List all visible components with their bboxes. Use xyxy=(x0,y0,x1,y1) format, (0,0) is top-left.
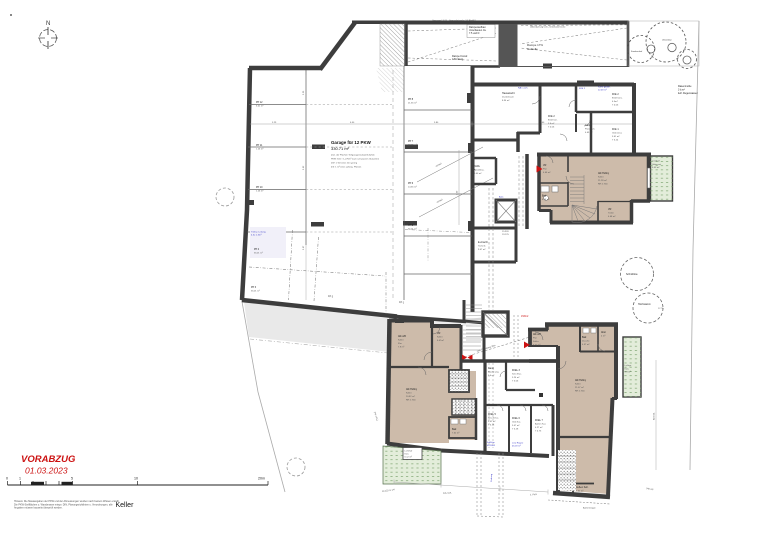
svg-text:PP 6: PP 6 xyxy=(408,182,414,185)
svg-text:20m: 20m xyxy=(258,477,265,481)
svg-text:21.07 m²: 21.07 m² xyxy=(575,386,584,389)
svg-text:T 5.28: T 5.28 xyxy=(512,429,519,431)
svg-text:4.27 m²: 4.27 m² xyxy=(535,426,543,429)
svg-text:FKE 2: FKE 2 xyxy=(548,115,555,118)
svg-text:Bad: Bad xyxy=(452,428,457,431)
svg-text:Flucht weg: Flucht weg xyxy=(488,370,499,373)
svg-text:PP 11: PP 11 xyxy=(256,144,263,147)
svg-text:12 ?b: 12 ?b xyxy=(658,308,664,310)
svg-text:FKE 1: FKE 1 xyxy=(612,128,619,131)
svg-text:5: 5 xyxy=(71,477,73,481)
svg-text:E-Anschl.: E-Anschl. xyxy=(478,241,489,244)
svg-text:Keller: Keller xyxy=(533,340,539,343)
svg-text:Lichthof: Lichthof xyxy=(652,160,660,163)
svg-text:Gitterrost: Gitterrost xyxy=(652,163,661,166)
svg-text:Keller: Keller xyxy=(116,502,135,509)
svg-text:Außen Kell.: Außen Kell. xyxy=(576,486,589,489)
svg-text:AR-Hobby: AR-Hobby xyxy=(598,172,610,175)
svg-text:T 4.06: T 4.06 xyxy=(548,127,555,129)
svg-text:6.12 m²: 6.12 m² xyxy=(405,456,413,459)
svg-text:3.6 m²: 3.6 m² xyxy=(548,122,554,125)
svg-text:5.70 m²: 5.70 m² xyxy=(533,344,541,347)
svg-text:5.24 m²: 5.24 m² xyxy=(512,376,520,379)
svg-text:56.01 m²: 56.01 m² xyxy=(251,290,260,293)
svg-text:AR+VR: AR+VR xyxy=(533,333,541,336)
svg-text:Bad: Bad xyxy=(582,336,587,339)
svg-text:Schr./Kas: Schr./Kas xyxy=(512,373,522,376)
svg-text:PP 12: PP 12 xyxy=(256,101,263,104)
svg-text:4.66 m²: 4.66 m² xyxy=(543,171,551,174)
svg-text:Garage für 12 PKW: Garage für 12 PKW xyxy=(331,140,372,145)
svg-text:4/5: 1 m² einer außerg. Pfütze: 4/5: 1 m² einer außerg. Pfützen xyxy=(331,166,362,169)
svg-text:Gehweg: Gehweg xyxy=(491,473,493,482)
svg-text:Schnittlinie: Schnittlinie xyxy=(626,273,638,276)
svg-text:Umsetzbar: Umsetzbar xyxy=(662,39,672,42)
svg-text:Lichtgr.: Lichtgr. xyxy=(625,364,632,367)
svg-text:48.18m²: 48.18m² xyxy=(487,444,495,447)
svg-text:330.71 m²: 330.71 m² xyxy=(331,146,350,151)
svg-text:5.01 m²: 5.01 m² xyxy=(488,420,496,423)
svg-text:Getr.Kas: Getr.Kas xyxy=(512,421,521,424)
svg-text:5.01 m²: 5.01 m² xyxy=(256,105,264,108)
svg-text:Keller: Keller xyxy=(575,383,581,386)
svg-text:1: 1 xyxy=(19,477,21,481)
svg-text:N: N xyxy=(46,21,50,27)
svg-text:Hausanschl.: Hausanschl. xyxy=(502,92,515,95)
svg-text:AR-Hobby: AR-Hobby xyxy=(575,379,587,382)
svg-text:01.03.2023: 01.03.2023 xyxy=(25,466,68,476)
svg-text:3.9 m²: 3.9 m² xyxy=(625,371,631,374)
svg-text:(incl. der Flächen Tiefgaragen: (incl. der Flächen Tiefgaragenrampe/Zufa… xyxy=(331,154,375,157)
svg-text:Einkfl vers.: Einkfl vers. xyxy=(612,97,623,100)
svg-text:46.18 m²: 46.18 m² xyxy=(512,445,521,448)
svg-text:AR+VR: AR+VR xyxy=(398,335,406,338)
svg-text:1.26 m²: 1.26 m² xyxy=(256,190,264,193)
svg-text:Besch.Kas: Besch.Kas xyxy=(488,418,499,420)
svg-text:Trinkw. Leitung: Trinkw. Leitung xyxy=(251,231,266,234)
svg-text:RA n.vorh.: RA n.vorh. xyxy=(518,87,529,90)
svg-text:Flur: Flur xyxy=(533,337,537,340)
svg-text:22.48 m²: 22.48 m² xyxy=(598,89,607,92)
svg-text:Flur: Flur xyxy=(543,168,547,171)
svg-text:21.28 m²: 21.28 m² xyxy=(598,179,607,182)
svg-text:AR-Hobby: AR-Hobby xyxy=(406,388,418,391)
svg-text:T 4.75: T 4.75 xyxy=(535,431,542,433)
svg-text:Tielen: Tielen xyxy=(608,213,615,215)
svg-text:5aR/àm: 5aR/àm xyxy=(487,442,495,444)
svg-text:5.07 m²: 5.07 m² xyxy=(512,424,520,427)
svg-text:FKEL 3: FKEL 3 xyxy=(512,369,521,372)
svg-text:Bad: Bad xyxy=(542,195,547,198)
svg-text:4.5u 1.3m²: 4.5u 1.3m² xyxy=(251,234,262,237)
svg-text:VR: VR xyxy=(543,164,547,167)
svg-text:T 5.18: T 5.18 xyxy=(488,425,495,427)
svg-text:Ueberdachung 5.05 - Unterkante: Ueberdachung 5.05 - Unterkante Decke xyxy=(530,26,566,29)
svg-text:56.01 m²: 56.01 m² xyxy=(254,252,263,255)
svg-text:3.61 m²: 3.61 m² xyxy=(612,135,620,138)
svg-text:7.5 und D: 7.5 und D xyxy=(469,32,480,35)
svg-text:Gefaelle: Gefaelle xyxy=(527,47,538,51)
svg-text:19.125: 19.125 xyxy=(502,234,509,236)
svg-text:Außentreppe: Außentreppe xyxy=(583,507,596,510)
svg-text:10: 10 xyxy=(134,477,138,481)
svg-text:Aufz.: Aufz. xyxy=(499,196,504,199)
svg-text:Keller: Keller xyxy=(406,392,412,395)
svg-text:0: 0 xyxy=(6,477,8,481)
svg-text:T 4.06: T 4.06 xyxy=(612,105,619,107)
svg-text:KiWa: KiWa xyxy=(474,165,480,168)
svg-text:Grenzverl. 5.05 - Grenzabstand: Grenzverl. 5.05 - Grenzabstand n. 54 Bbg… xyxy=(432,19,476,22)
svg-text:Getr.kress: Getr.kress xyxy=(612,132,623,135)
svg-text:Kernf geöffn.: Kernf geöffn. xyxy=(598,86,611,89)
svg-text:Keller: Keller xyxy=(598,176,604,179)
svg-text:20.82 m²: 20.82 m² xyxy=(406,395,415,398)
svg-text:21.56 m²: 21.56 m² xyxy=(408,102,417,105)
svg-text:9.47 m²: 9.47 m² xyxy=(478,248,486,251)
svg-text:Lino Regne: Lino Regne xyxy=(512,443,524,445)
svg-text:Dunkelraum: Dunkelraum xyxy=(502,96,514,99)
svg-text:Abst: Abst xyxy=(601,331,606,334)
svg-text:FKE 2: FKE 2 xyxy=(579,88,586,90)
svg-text:6.47m²: 6.47m² xyxy=(437,339,444,342)
svg-text:ZW: 1 Teil einer 2m sperrig: ZW: 1 Teil einer 2m sperrig xyxy=(331,162,358,165)
svg-text:RH 2.75m: RH 2.75m xyxy=(406,400,416,402)
svg-text:4.57 m²: 4.57 m² xyxy=(582,343,590,346)
svg-text:PP 5: PP 5 xyxy=(408,224,414,227)
svg-text:4.08 m²: 4.08 m² xyxy=(542,198,550,201)
svg-text:Flur: Flur xyxy=(398,342,402,345)
svg-text:Keller: Keller xyxy=(398,339,404,342)
svg-text:T 5.06: T 5.06 xyxy=(512,381,519,383)
svg-text:48.01 m²: 48.01 m² xyxy=(408,144,417,147)
svg-text:Kanalverlauf: Kanalverlauf xyxy=(631,51,643,53)
svg-text:4.5m²: 4.5m² xyxy=(612,100,618,103)
svg-text:Abstellrau.: Abstellrau. xyxy=(474,169,485,172)
svg-text:8.34 m²: 8.34 m² xyxy=(502,99,510,102)
svg-text:FKEL 7: FKEL 7 xyxy=(535,419,544,422)
svg-text:Einkfl ver.: Einkfl ver. xyxy=(548,119,558,122)
svg-text:14.56 m²: 14.56 m² xyxy=(408,186,417,189)
svg-text:T 3.24: T 3.24 xyxy=(612,140,619,142)
svg-text:1.26 m²: 1.26 m² xyxy=(256,148,264,151)
svg-text:FKEL 6: FKEL 6 xyxy=(512,417,521,420)
svg-text:PP 4: PP 4 xyxy=(254,248,260,251)
svg-text:PP 2: PP 2 xyxy=(328,295,334,298)
svg-text:Keller: Keller xyxy=(437,336,443,339)
svg-text:FKE 2: FKE 2 xyxy=(612,93,619,96)
svg-text:tiefl. Regenwasser: tiefl. Regenwasser xyxy=(678,92,698,95)
svg-text:1531/2: 1531/2 xyxy=(521,315,529,318)
svg-text:Außen Kas: Außen Kas xyxy=(535,423,547,426)
svg-text:RH 2.75m: RH 2.75m xyxy=(598,184,608,186)
svg-text:7.62 m²: 7.62 m² xyxy=(452,431,460,434)
svg-text:6.00 m²: 6.00 m² xyxy=(474,172,482,175)
svg-text:Lichthof: Lichthof xyxy=(405,450,413,453)
svg-text:PP 7: PP 7 xyxy=(408,140,414,143)
svg-text:RH 2.75m: RH 2.75m xyxy=(575,391,585,393)
svg-text:4 m²: 4 m² xyxy=(601,335,606,338)
svg-text:VORABZUG: VORABZUG xyxy=(21,454,76,465)
svg-text:PP 8: PP 8 xyxy=(408,98,414,101)
svg-text:A6 1/4L: A6 1/4L xyxy=(653,412,656,420)
svg-text:Angaben müssen bauseits überpr: Angaben müssen bauseits überprüft werden… xyxy=(14,507,63,510)
svg-text:7.9 m²: 7.9 m² xyxy=(398,346,404,349)
svg-text:4.68 m²: 4.68 m² xyxy=(608,215,616,218)
svg-text:17% Steig.: 17% Steig. xyxy=(452,58,464,61)
svg-text:Gang: Gang xyxy=(488,367,495,370)
svg-text:Hochstamm: Hochstamm xyxy=(638,303,651,306)
svg-text:15.920: 15.920 xyxy=(502,231,509,233)
svg-text:PP 3: PP 3 xyxy=(251,286,257,289)
svg-text:PP 1: PP 1 xyxy=(399,301,405,304)
svg-text:PKW: 515 × 1,275m² nach schwar: PKW: 515 × 1,275m² nach schwarzem Gutach… xyxy=(331,158,380,161)
svg-text:VR: VR xyxy=(608,208,612,211)
svg-text:7.62 m²: 7.62 m² xyxy=(576,490,584,493)
svg-text:5.0 m²: 5.0 m² xyxy=(488,374,494,377)
svg-text:FKEL 5: FKEL 5 xyxy=(488,413,497,416)
svg-text:PP 10: PP 10 xyxy=(256,186,263,189)
svg-text:Dusche: Dusche xyxy=(582,341,590,343)
svg-text:Technik: Technik xyxy=(478,246,486,248)
svg-text:6.00 m²: 6.00 m² xyxy=(652,166,660,169)
